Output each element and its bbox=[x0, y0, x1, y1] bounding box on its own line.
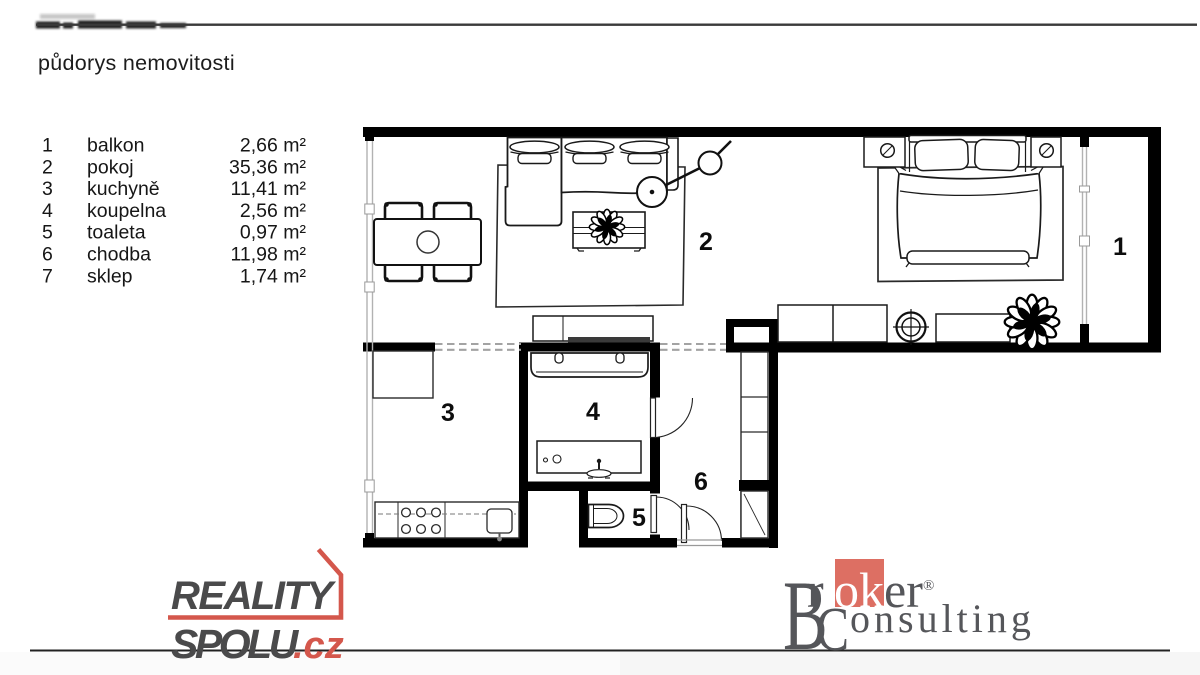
svg-text:půdorys nemovitosti: půdorys nemovitosti bbox=[38, 51, 235, 75]
svg-text:1,74 m²: 1,74 m² bbox=[240, 265, 307, 287]
svg-text:2,66 m²: 2,66 m² bbox=[240, 135, 307, 157]
svg-text:2: 2 bbox=[42, 156, 53, 178]
svg-text:chodba: chodba bbox=[87, 244, 151, 266]
svg-text:toaleta: toaleta bbox=[87, 222, 146, 244]
svg-text:0,97 m²: 0,97 m² bbox=[240, 222, 307, 244]
svg-text:sklep: sklep bbox=[87, 265, 133, 287]
svg-text:4: 4 bbox=[586, 398, 600, 426]
svg-text:.cz: .cz bbox=[293, 625, 344, 667]
svg-text:balkon: balkon bbox=[87, 135, 144, 157]
svg-text:pokoj: pokoj bbox=[87, 156, 134, 178]
svg-text:onsulting: onsulting bbox=[850, 596, 1035, 641]
svg-text:35,36 m²: 35,36 m² bbox=[229, 156, 306, 178]
svg-text:5: 5 bbox=[632, 504, 646, 532]
svg-text:5: 5 bbox=[42, 222, 53, 244]
svg-text:koupelna: koupelna bbox=[87, 200, 166, 222]
svg-text:SPOLU: SPOLU bbox=[171, 621, 300, 667]
svg-text:11,41 m²: 11,41 m² bbox=[230, 178, 306, 200]
svg-text:6: 6 bbox=[694, 468, 708, 496]
svg-text:1: 1 bbox=[42, 135, 53, 157]
svg-text:7: 7 bbox=[42, 265, 53, 287]
svg-text:®: ® bbox=[923, 578, 934, 594]
svg-text:3: 3 bbox=[441, 399, 455, 427]
svg-text:4: 4 bbox=[42, 200, 53, 222]
svg-text:6: 6 bbox=[42, 244, 53, 266]
svg-text:REALITY: REALITY bbox=[171, 574, 336, 618]
svg-text:3: 3 bbox=[42, 178, 53, 200]
svg-text:11,98 m²: 11,98 m² bbox=[230, 244, 306, 266]
svg-text:1: 1 bbox=[1113, 233, 1127, 261]
svg-text:2: 2 bbox=[699, 228, 713, 256]
svg-text:kuchyně: kuchyně bbox=[87, 178, 160, 200]
svg-text:2,56 m²: 2,56 m² bbox=[240, 200, 307, 222]
svg-text:C: C bbox=[816, 596, 849, 664]
